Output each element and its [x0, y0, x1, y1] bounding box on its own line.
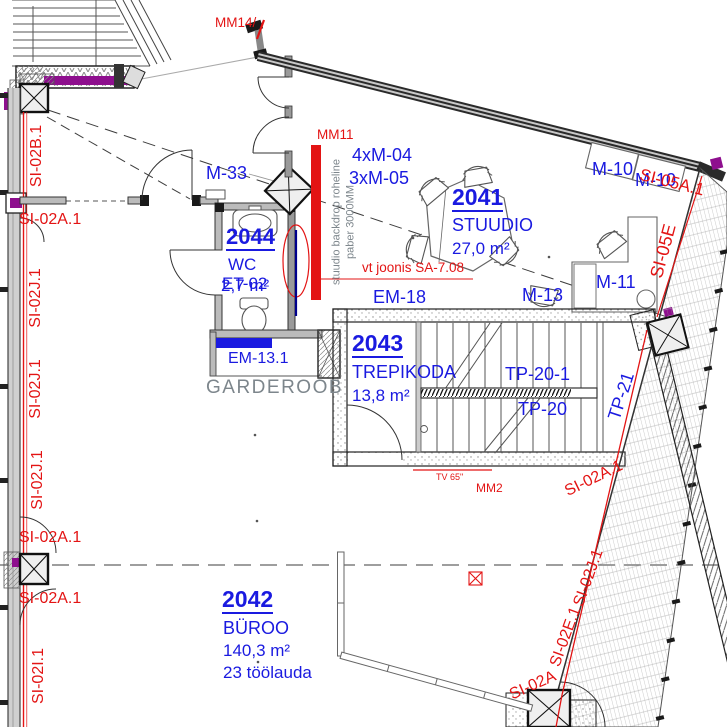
label-m11: M-11: [596, 273, 636, 291]
room-name-2043: TREPIKODA: [352, 363, 456, 381]
stair-treads: [437, 322, 603, 452]
label-m05-group: 3xM-05: [349, 169, 409, 187]
room-number-2042: 2042: [222, 588, 273, 614]
label-tp20-1: TP-20-1: [505, 365, 570, 383]
symbol-red-box: [469, 572, 482, 585]
label-tp20: TP-20: [518, 400, 567, 418]
label-em18: EM-18: [373, 288, 426, 306]
exterior-stair: [12, 0, 171, 66]
fire-label-si02a1-top: SI-02A.1: [19, 212, 81, 228]
fire-label-si02j1-a: SI-02J.1: [28, 268, 44, 328]
label-m33: M-33: [206, 164, 247, 182]
label-em13-1: EM-13.1: [228, 351, 288, 367]
fire-label-si02a1-low: SI-02A.1: [19, 591, 81, 607]
stair-landing-rail: [421, 388, 597, 398]
room-desks-2042: 23 töölauda: [223, 664, 312, 681]
room-area-2042: 140,3 m²: [223, 642, 290, 659]
fire-label-si02a1-mid: SI-02A.1: [19, 530, 81, 546]
room-area-2043: 13,8 m²: [352, 387, 410, 404]
bin-icon: [637, 290, 655, 308]
floor-plan-canvas: MM14/ MM11 M-33 4xM-04 3xM-05 2041 STUUD…: [0, 0, 727, 727]
label-m10-upper: M-10: [592, 160, 633, 178]
studio-entry-doors: [253, 56, 292, 177]
cabinet-fill: [216, 338, 272, 348]
room-name-2041: STUUDIO: [452, 216, 533, 234]
room-number-2041: 2041: [452, 186, 503, 212]
room-area-2041: 27,0 m²: [452, 240, 510, 257]
room-number-2043: 2043: [352, 332, 403, 358]
backdrop-bar: [311, 145, 321, 300]
toilet-icon: [240, 298, 268, 334]
fire-label-si02i1: SI-02I.1: [31, 648, 47, 704]
column-right: [647, 314, 688, 355]
room-name-2042: BÜROO: [223, 619, 289, 637]
fire-label-si02j1-c: SI-02J.1: [30, 450, 46, 510]
marking-mm11: MM11: [317, 128, 354, 142]
wall: [210, 330, 322, 338]
office-partitions: [338, 552, 533, 711]
room-name-2044: WC: [228, 256, 256, 273]
fire-label-si02b1: SI-02B.1: [29, 125, 45, 187]
label-m13: M-13: [522, 286, 563, 304]
fire-label-si02j1-b: SI-02J.1: [28, 359, 44, 419]
backdrop-note-line2: paber 3000MM: [346, 185, 357, 259]
reference-note: vt joonis SA-7.08: [362, 261, 464, 275]
label-m04-group: 4xM-04: [352, 146, 412, 164]
office-desk: [572, 217, 657, 312]
room-code-2044: ET-02: [222, 275, 267, 292]
left-wall: [0, 88, 27, 727]
marking-mm14: MM14/: [215, 16, 256, 30]
marking-mm2: MM2: [476, 482, 503, 494]
backdrop-note-line1: stuudio backdrop roheline: [332, 159, 343, 285]
label-tv: TV 65": [436, 473, 463, 482]
room-number-2044: 2044: [226, 226, 275, 251]
label-garderoob: GARDEROOB: [206, 378, 343, 397]
